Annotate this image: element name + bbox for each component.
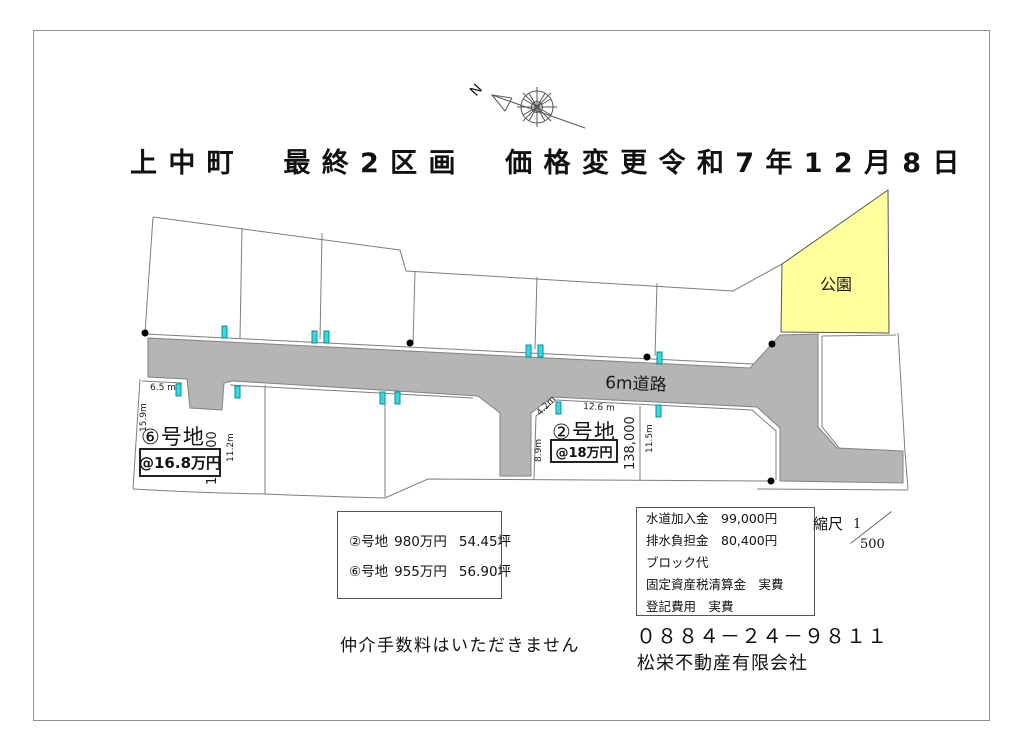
fee-line: 排水負担金 80,400円 <box>646 530 814 549</box>
park-polygon <box>781 190 889 333</box>
fee-line: ブロック代 <box>646 552 814 571</box>
price-row-plot: ⑥号地 <box>349 560 388 580</box>
price-table-row: ②号地 980万円 54.45坪 <box>349 530 501 550</box>
price-table: ②号地 980万円 54.45坪 ⑥号地 955万円 56.90坪 <box>337 511 502 599</box>
plot2-dim-left: 8.9m <box>534 439 544 462</box>
fee-line: 登記費用 実費 <box>646 596 814 615</box>
scale-label: 縮尺 <box>813 513 843 534</box>
plot2-unit-price: @18万円 <box>550 439 618 463</box>
price-row-price: 955万円 <box>394 560 447 580</box>
north-label: N <box>467 81 486 99</box>
scale-denominator: 500 <box>860 537 885 552</box>
plot2-tsubo-price: 138,000 <box>623 416 638 470</box>
price-table-row: ⑥号地 955万円 56.90坪 <box>349 560 501 580</box>
fee-line: 水道加入金 99,000円 <box>646 508 814 527</box>
road-label: 6m道路 <box>605 373 667 396</box>
plot6-name: ⑥号地 <box>141 421 205 451</box>
plot6-dim-right: 11.2m <box>226 433 236 462</box>
price-row-area: 56.90坪 <box>459 560 511 580</box>
plot2-dim-right: 11.5m <box>645 424 655 453</box>
no-commission-notice: 仲介手数料はいただきません <box>340 631 580 656</box>
fees-box: 水道加入金 99,000円 排水負担金 80,400円 ブロック代 固定資産税清… <box>636 507 815 616</box>
price-row-price: 980万円 <box>394 530 447 550</box>
price-row-area: 54.45坪 <box>459 530 511 550</box>
plot2-dim-top: 12.6 m <box>583 402 615 414</box>
company-name: 松栄不動産有限会社 <box>637 649 808 675</box>
plot6-unit-price: @16.8万円 <box>139 448 221 477</box>
plot6-dim-top: 6.5 m <box>150 383 176 393</box>
scale-numerator: 1 <box>853 517 861 532</box>
north-arrow-head <box>492 95 512 111</box>
flyer-page: 上中町 最終2区画 価格変更令和7年12月8日 <box>0 0 1024 751</box>
phone-number: ０８８４－２４－９８１１ <box>636 620 888 649</box>
park-label: 公園 <box>820 275 852 294</box>
fee-line: 固定資産税清算金 実費 <box>646 574 814 593</box>
price-row-plot: ②号地 <box>349 530 388 550</box>
compass-icon: N <box>467 81 585 128</box>
